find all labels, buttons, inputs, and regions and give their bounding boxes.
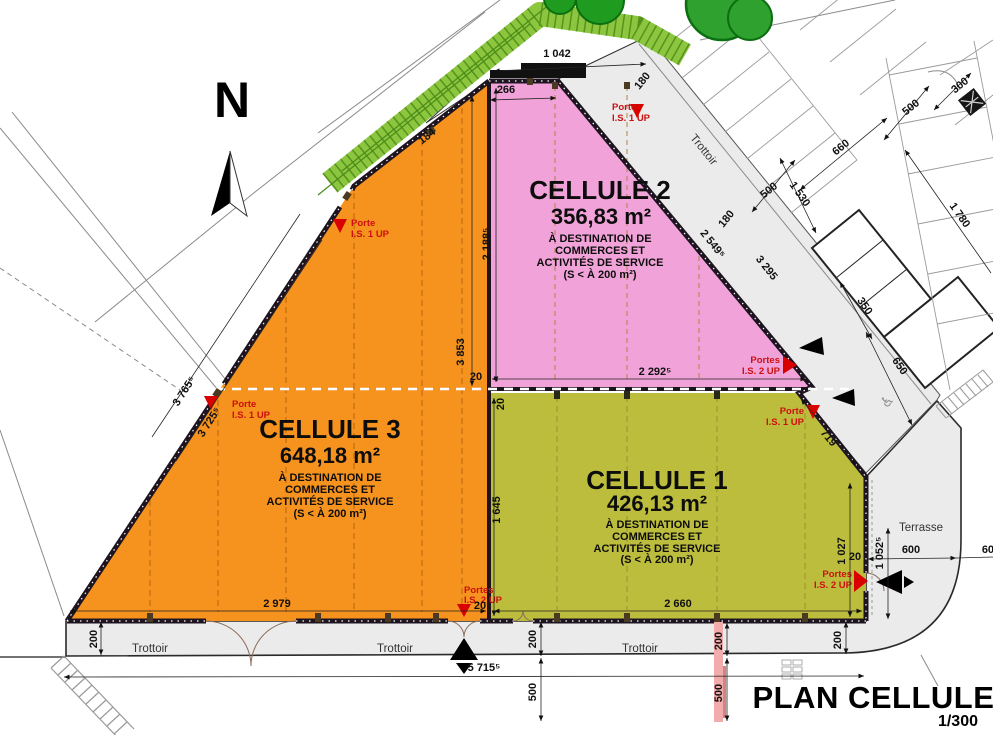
door-label: I.S. 2 UP	[742, 366, 781, 377]
dim-terrasse-w: 600	[902, 544, 920, 556]
north-needle-dark	[211, 151, 230, 216]
dim-offset-1: 500	[527, 683, 539, 701]
dim-terrasse-w2: 600	[982, 544, 993, 556]
cell-2-area: 356,83 m²	[551, 204, 651, 229]
dim-offset-2: 500	[713, 684, 725, 702]
cell-3-dest-2: COMMERCES ET	[285, 484, 375, 496]
dim-orange-bottom: 2 979	[263, 598, 291, 610]
door-label: I.S. 1 UP	[612, 113, 651, 124]
cell-3-area: 648,18 m²	[280, 443, 380, 468]
crosswalk-bottom-left	[51, 656, 134, 735]
plan-title: PLAN CELLULES	[752, 680, 993, 715]
cell-3-name: CELLULE 3	[259, 414, 401, 444]
cell-3-dest-4: (S < À 200 m²)	[293, 507, 366, 520]
dim-p660: 660	[830, 137, 852, 158]
cell-2-dest-4: (S < À 200 m²)	[563, 268, 636, 281]
cell-2-dest-3: ACTIVITÉS DE SERVICE	[537, 256, 664, 269]
cell-3-dest-1: À DESTINATION DE	[278, 471, 381, 484]
north-arrow: N	[211, 72, 250, 216]
dim-total: 5 715⁵	[468, 662, 501, 674]
door-label: Portes	[822, 569, 852, 580]
north-needle-light	[230, 151, 247, 216]
plan-scale: 1/300	[938, 713, 978, 730]
dim-wall-v: 20	[495, 398, 507, 410]
cell-1-area: 426,13 m²	[607, 491, 707, 516]
dim-pink-inner: 266	[497, 84, 515, 96]
dim-wall-h: 20	[470, 371, 482, 383]
dim-olive-bottom: 2 660	[664, 598, 692, 610]
door-label: I.S. 1 UP	[766, 417, 805, 428]
terrasse-label: Terrasse	[899, 522, 943, 534]
trottoir-label-1: Trottoir	[132, 643, 168, 655]
cell-2-dest-2: COMMERCES ET	[555, 245, 645, 257]
door-label: I.S. 2 UP	[814, 580, 853, 591]
dim-pink-bottom: 2 292⁵	[639, 366, 672, 378]
site-plan-drawing: ♿	[0, 0, 993, 735]
dim-olive-left: 1 645	[491, 496, 503, 524]
cell-1-dest-4: (S < À 200 m²)	[620, 553, 693, 566]
dim-sidewalk-3: 200	[713, 632, 725, 650]
dim-sidewalk-4: 200	[832, 631, 844, 649]
north-label: N	[214, 72, 250, 128]
cell-3-dest-3: ACTIVITÉS DE SERVICE	[267, 495, 394, 508]
door-label: I.S. 1 UP	[351, 229, 390, 240]
trottoir-label-2: Trottoir	[377, 643, 413, 655]
dim-olive-right-outer: 1 052⁵	[874, 537, 886, 570]
dim-pink-left: 2 188⁵	[481, 228, 493, 261]
cell-2-name: CELLULE 2	[529, 175, 671, 205]
door-label: Porte	[351, 218, 375, 229]
cell-2-label: CELLULE 2 356,83 m² À DESTINATION DE COM…	[529, 175, 671, 281]
dim-p1530: 1 530	[787, 180, 813, 209]
dim-canopy: 1 042	[543, 48, 571, 60]
door-label: Portes	[750, 355, 780, 366]
site-plan-page: ♿	[0, 0, 993, 735]
cell-1-dest-2: COMMERCES ET	[612, 531, 702, 543]
dim-wall-bottom: 20	[474, 600, 486, 612]
cell-1-dest-1: À DESTINATION DE	[605, 518, 708, 531]
door-label: Porte	[232, 399, 256, 410]
dim-edge-outer: 3 765⁵	[171, 374, 199, 408]
cell-1-label: CELLULE 1 426,13 m² À DESTINATION DE COM…	[586, 465, 728, 566]
dim-sidewalk-1: 200	[88, 630, 100, 648]
trottoir-label-3: Trottoir	[622, 643, 658, 655]
dim-olive-right: 1 027	[836, 537, 848, 565]
dim-wall-right: 20	[849, 551, 861, 563]
cell-3-polygon	[67, 81, 489, 621]
dim-sidewalk-2: 200	[527, 630, 539, 648]
title-block: PLAN CELLULES 1/300	[752, 680, 993, 730]
cell-3-label: CELLULE 3 648,18 m² À DESTINATION DE COM…	[259, 414, 401, 520]
dim-orange-right: 3 853	[455, 338, 467, 366]
door-label: Porte	[780, 406, 804, 417]
cell-2-dest-1: À DESTINATION DE	[548, 232, 651, 245]
door-label: Porte	[612, 102, 636, 113]
dim-p500b: 500	[900, 97, 922, 118]
